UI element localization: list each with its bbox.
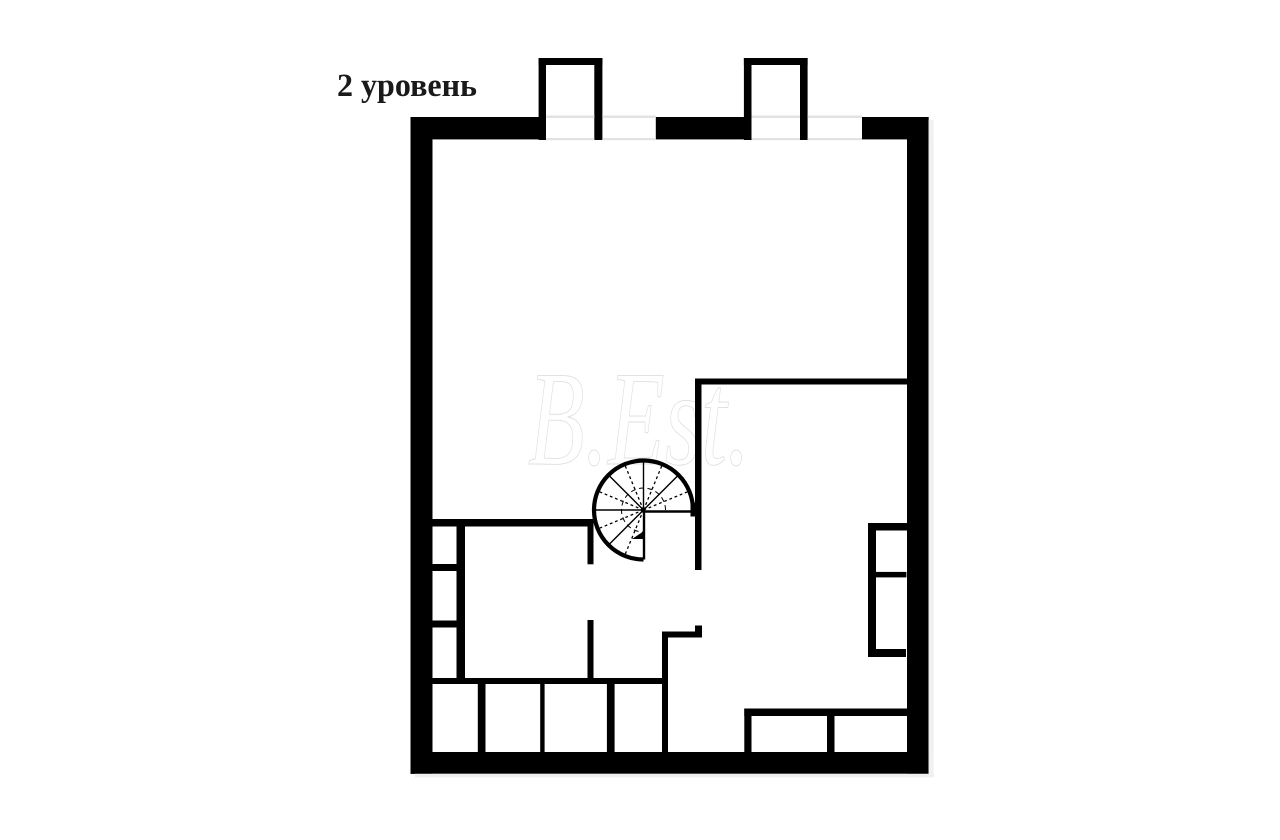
svg-text:B.Est.: B.Est.	[528, 345, 750, 494]
svg-text:2 уровень: 2 уровень	[337, 68, 477, 104]
